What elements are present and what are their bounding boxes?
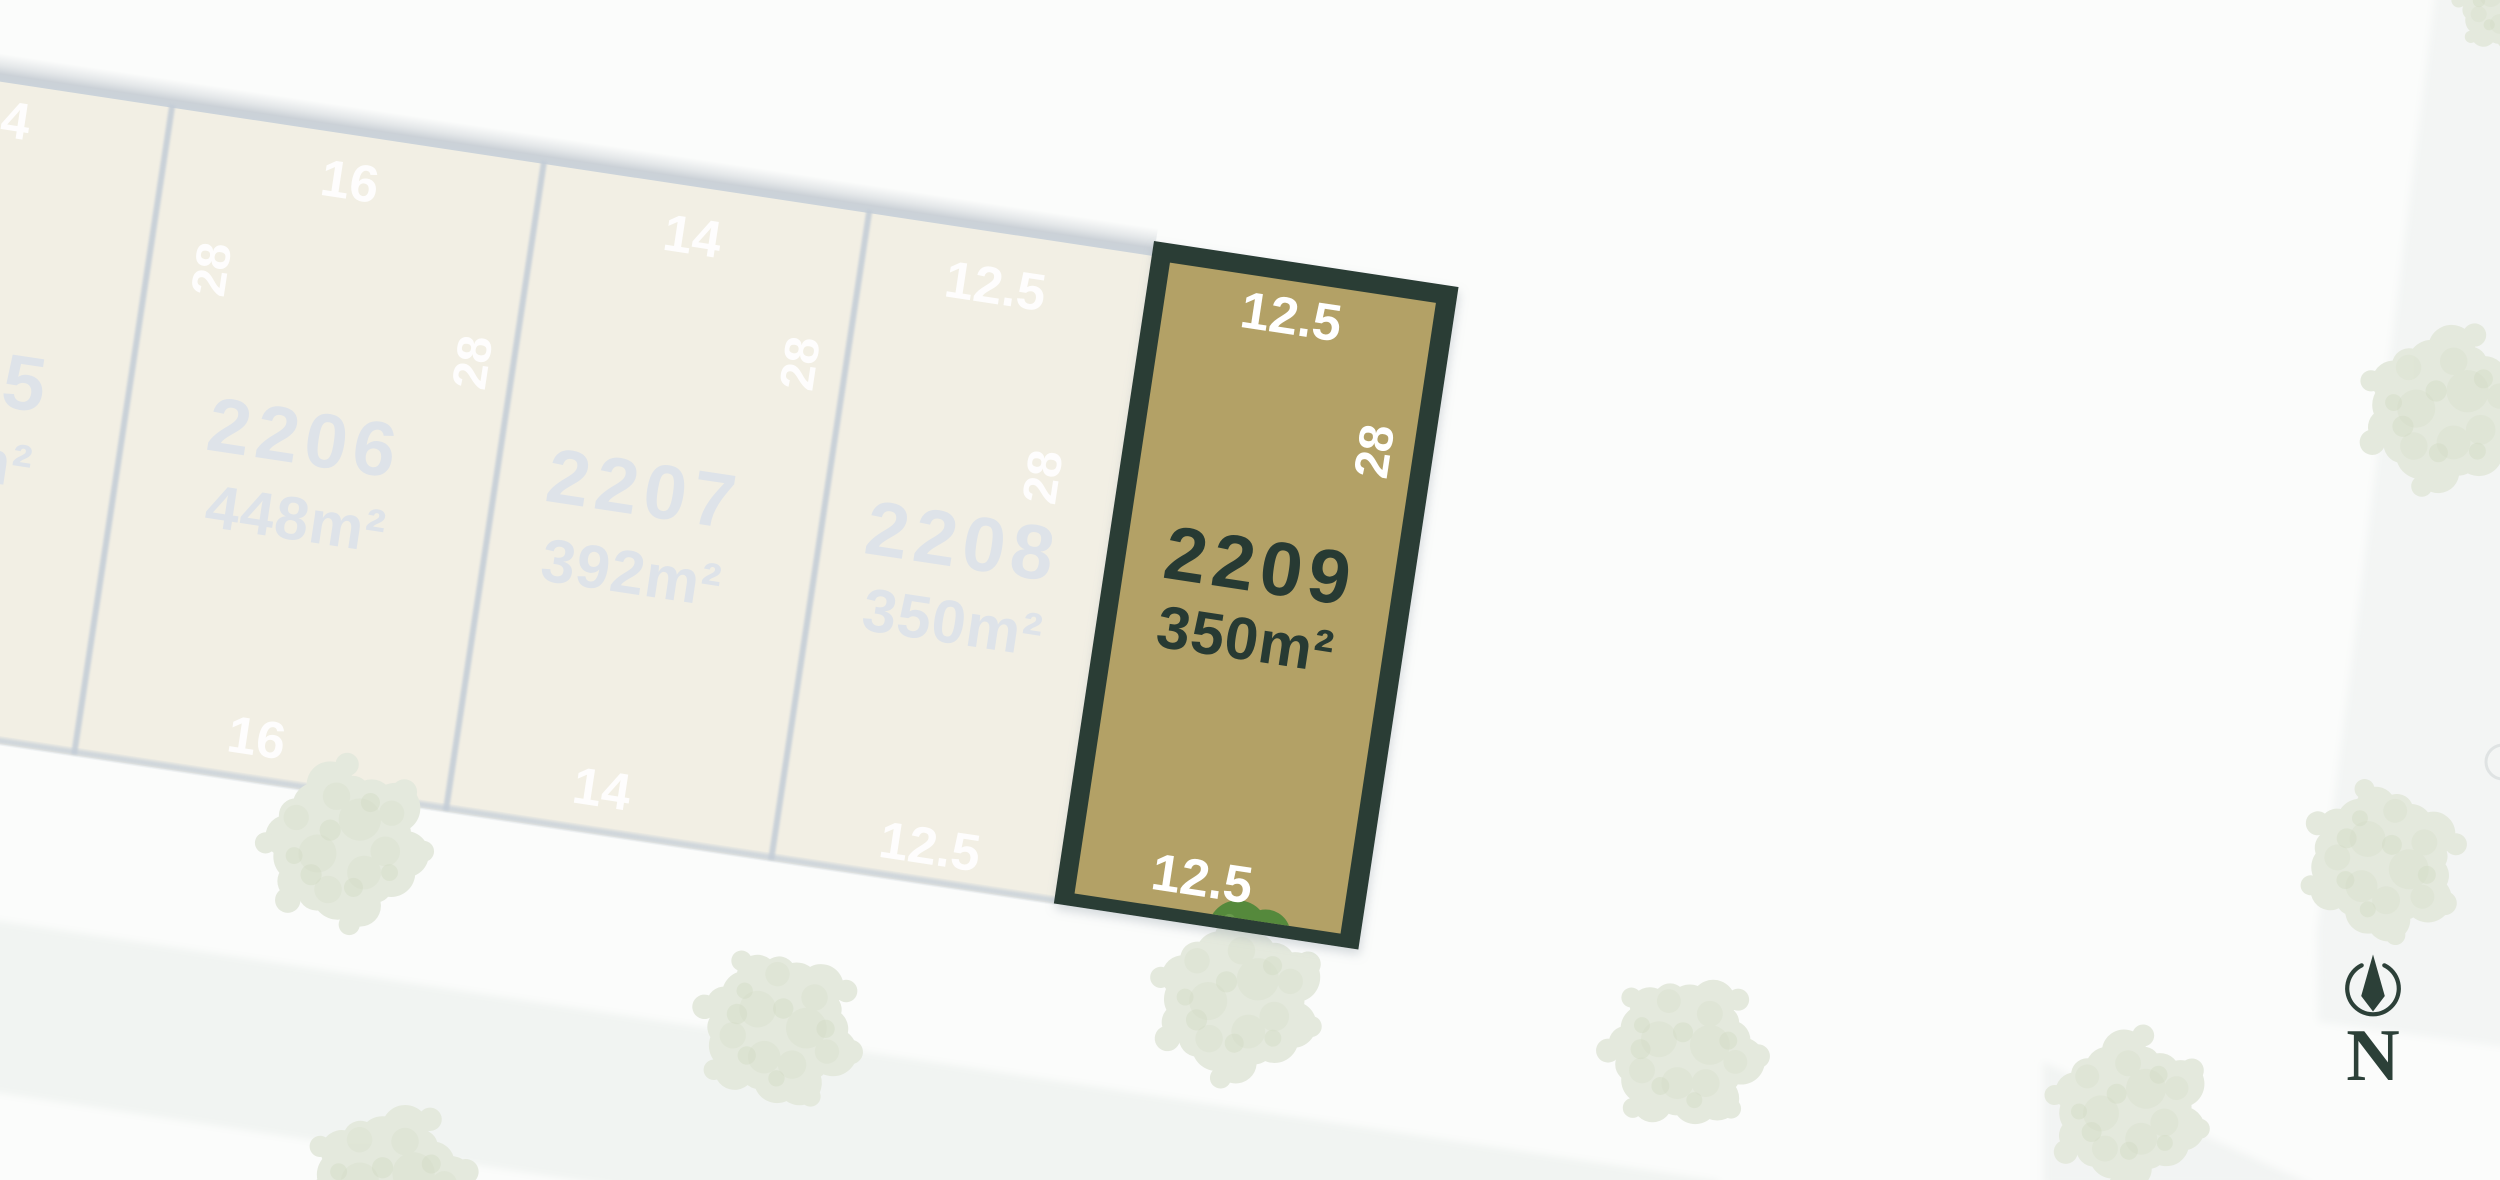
svg-text:28: 28 [1013, 447, 1073, 508]
svg-text:28: 28 [771, 333, 831, 394]
svg-text:28: 28 [182, 239, 242, 300]
svg-text:28: 28 [1345, 421, 1405, 482]
svg-text:16: 16 [224, 705, 290, 771]
svg-text:16: 16 [317, 149, 383, 215]
svg-text:14: 14 [659, 204, 725, 270]
svg-text:28: 28 [443, 332, 503, 393]
svg-text:14: 14 [569, 757, 635, 823]
svg-text:N: N [2346, 1015, 2399, 1097]
